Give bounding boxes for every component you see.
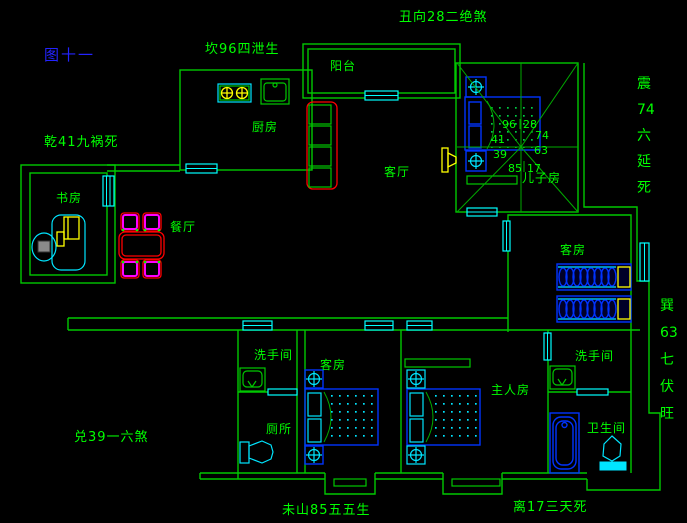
washroom-east-door-vertical: [544, 333, 551, 360]
nightstand: [466, 77, 486, 97]
washroom-east-sink: [550, 366, 575, 389]
svg-text:死: 死: [637, 180, 651, 196]
compass-number-s-left: 85: [508, 162, 522, 175]
nightstand: [407, 446, 425, 464]
bay-window-sill-right: [452, 479, 500, 486]
twin-bed: [557, 264, 631, 290]
fengshui-label-left-bottom: 兑39一六煞: [74, 430, 149, 445]
dining-chair: [121, 260, 139, 278]
floor-plan-drawing: 图十一 坎96四泄生 丑向28二绝煞 乾41九祸死 兑39一六煞 未山85五五生…: [0, 0, 687, 523]
compass-number-s-right: 17: [527, 162, 541, 175]
twin-bed: [557, 296, 631, 322]
bathroom-toilet-icon: [600, 436, 626, 470]
corridor-wall: [68, 318, 640, 330]
compass-number-e-upper: 74: [535, 129, 549, 142]
room-label-washroom-east: 洗手间: [575, 349, 614, 363]
compass-number-e-lower: 63: [534, 144, 548, 157]
guest-south-bed: [305, 389, 378, 445]
toilet-icon: [240, 441, 273, 463]
svg-text:63: 63: [660, 325, 678, 341]
room-label-washroom-west: 洗手间: [254, 348, 293, 362]
bottom-outer-wall: [200, 473, 587, 479]
study-desk: [32, 215, 85, 270]
room-label-master: 主人房: [491, 382, 530, 397]
dining-chair: [121, 213, 139, 231]
svg-text:巽: 巽: [660, 298, 674, 314]
figure-title: 图十一: [44, 46, 95, 64]
room-label-dining: 餐厅: [170, 219, 196, 234]
fengshui-label-left-top: 乾41九祸死: [44, 135, 119, 150]
master-shelf: [405, 359, 470, 367]
room-label-balcony: 阳台: [330, 58, 356, 73]
kitchen-window: [186, 164, 217, 173]
compass-number-w-lower: 39: [493, 148, 507, 161]
svg-text:六: 六: [637, 128, 651, 144]
svg-text:七: 七: [660, 352, 674, 368]
svg-text:伏: 伏: [660, 379, 674, 395]
study-door: [103, 176, 114, 206]
room-label-study: 书房: [56, 190, 82, 205]
outer-right-window: [640, 243, 649, 281]
svg-text:延: 延: [637, 154, 651, 170]
toilet-door: [268, 389, 297, 395]
svg-text:旺: 旺: [660, 406, 674, 422]
balcony-window: [365, 91, 398, 100]
master-bed: [407, 389, 480, 445]
bay-window-walls: [325, 473, 502, 494]
room-label-living: 客厅: [384, 164, 410, 179]
entry-door-icon: [442, 148, 456, 172]
fengshui-label-top: 坎96四泄生: [205, 42, 280, 57]
washroom-west-sink: [240, 368, 265, 391]
stove: [218, 84, 251, 102]
corridor-door-washroom-west: [243, 321, 272, 330]
dining-chair: [143, 260, 161, 278]
room-label-guest-south: 客房: [320, 357, 346, 372]
svg-text:震: 震: [637, 76, 651, 92]
fengshui-label-right-bottom: 巽 63 七 伏 旺: [660, 298, 678, 422]
guest-room-east-window: [503, 221, 510, 251]
fengshui-label-bottom-right: 离17三天死: [513, 499, 588, 515]
washroom-east-door: [577, 389, 608, 395]
kitchen-sink: [261, 79, 289, 104]
bay-window-sill-left: [334, 479, 366, 486]
fengshui-label-right-top: 震 74 六 延 死: [637, 76, 655, 196]
room-label-bathroom: 卫生间: [587, 421, 626, 435]
room-label-guest-east: 客房: [560, 242, 586, 257]
room-label-toilet: 厕所: [266, 422, 292, 436]
svg-text:74: 74: [637, 102, 655, 118]
fengshui-label-top-right: 丑向28二绝煞: [399, 9, 488, 25]
computer-icon: [57, 217, 79, 246]
bathtub: [550, 413, 579, 473]
compass-number-n-left: 96: [502, 118, 516, 131]
nightstand: [305, 446, 323, 464]
dining-set: [119, 213, 164, 278]
nightstand: [466, 151, 486, 171]
room-label-kitchen: 厨房: [252, 119, 278, 134]
compass-number-w-upper: 41: [491, 133, 505, 146]
floor-plan-canvas: 图十一 坎96四泄生 丑向28二绝煞 乾41九祸死 兑39一六煞 未山85五五生…: [0, 0, 687, 523]
kitchen-wall: [180, 70, 312, 170]
nightstand: [305, 370, 323, 388]
corridor-door-master: [407, 321, 432, 330]
dining-chair: [143, 213, 161, 231]
fengshui-label-bottom-left: 未山85五五生: [282, 503, 371, 518]
son-room-window: [467, 208, 497, 216]
nightstand: [407, 370, 425, 388]
study-kitchen-wall: [107, 165, 180, 171]
son-room-shelf: [467, 176, 517, 184]
balcony-outer-wall: [303, 44, 460, 98]
corridor-door-guest-south: [365, 321, 393, 330]
